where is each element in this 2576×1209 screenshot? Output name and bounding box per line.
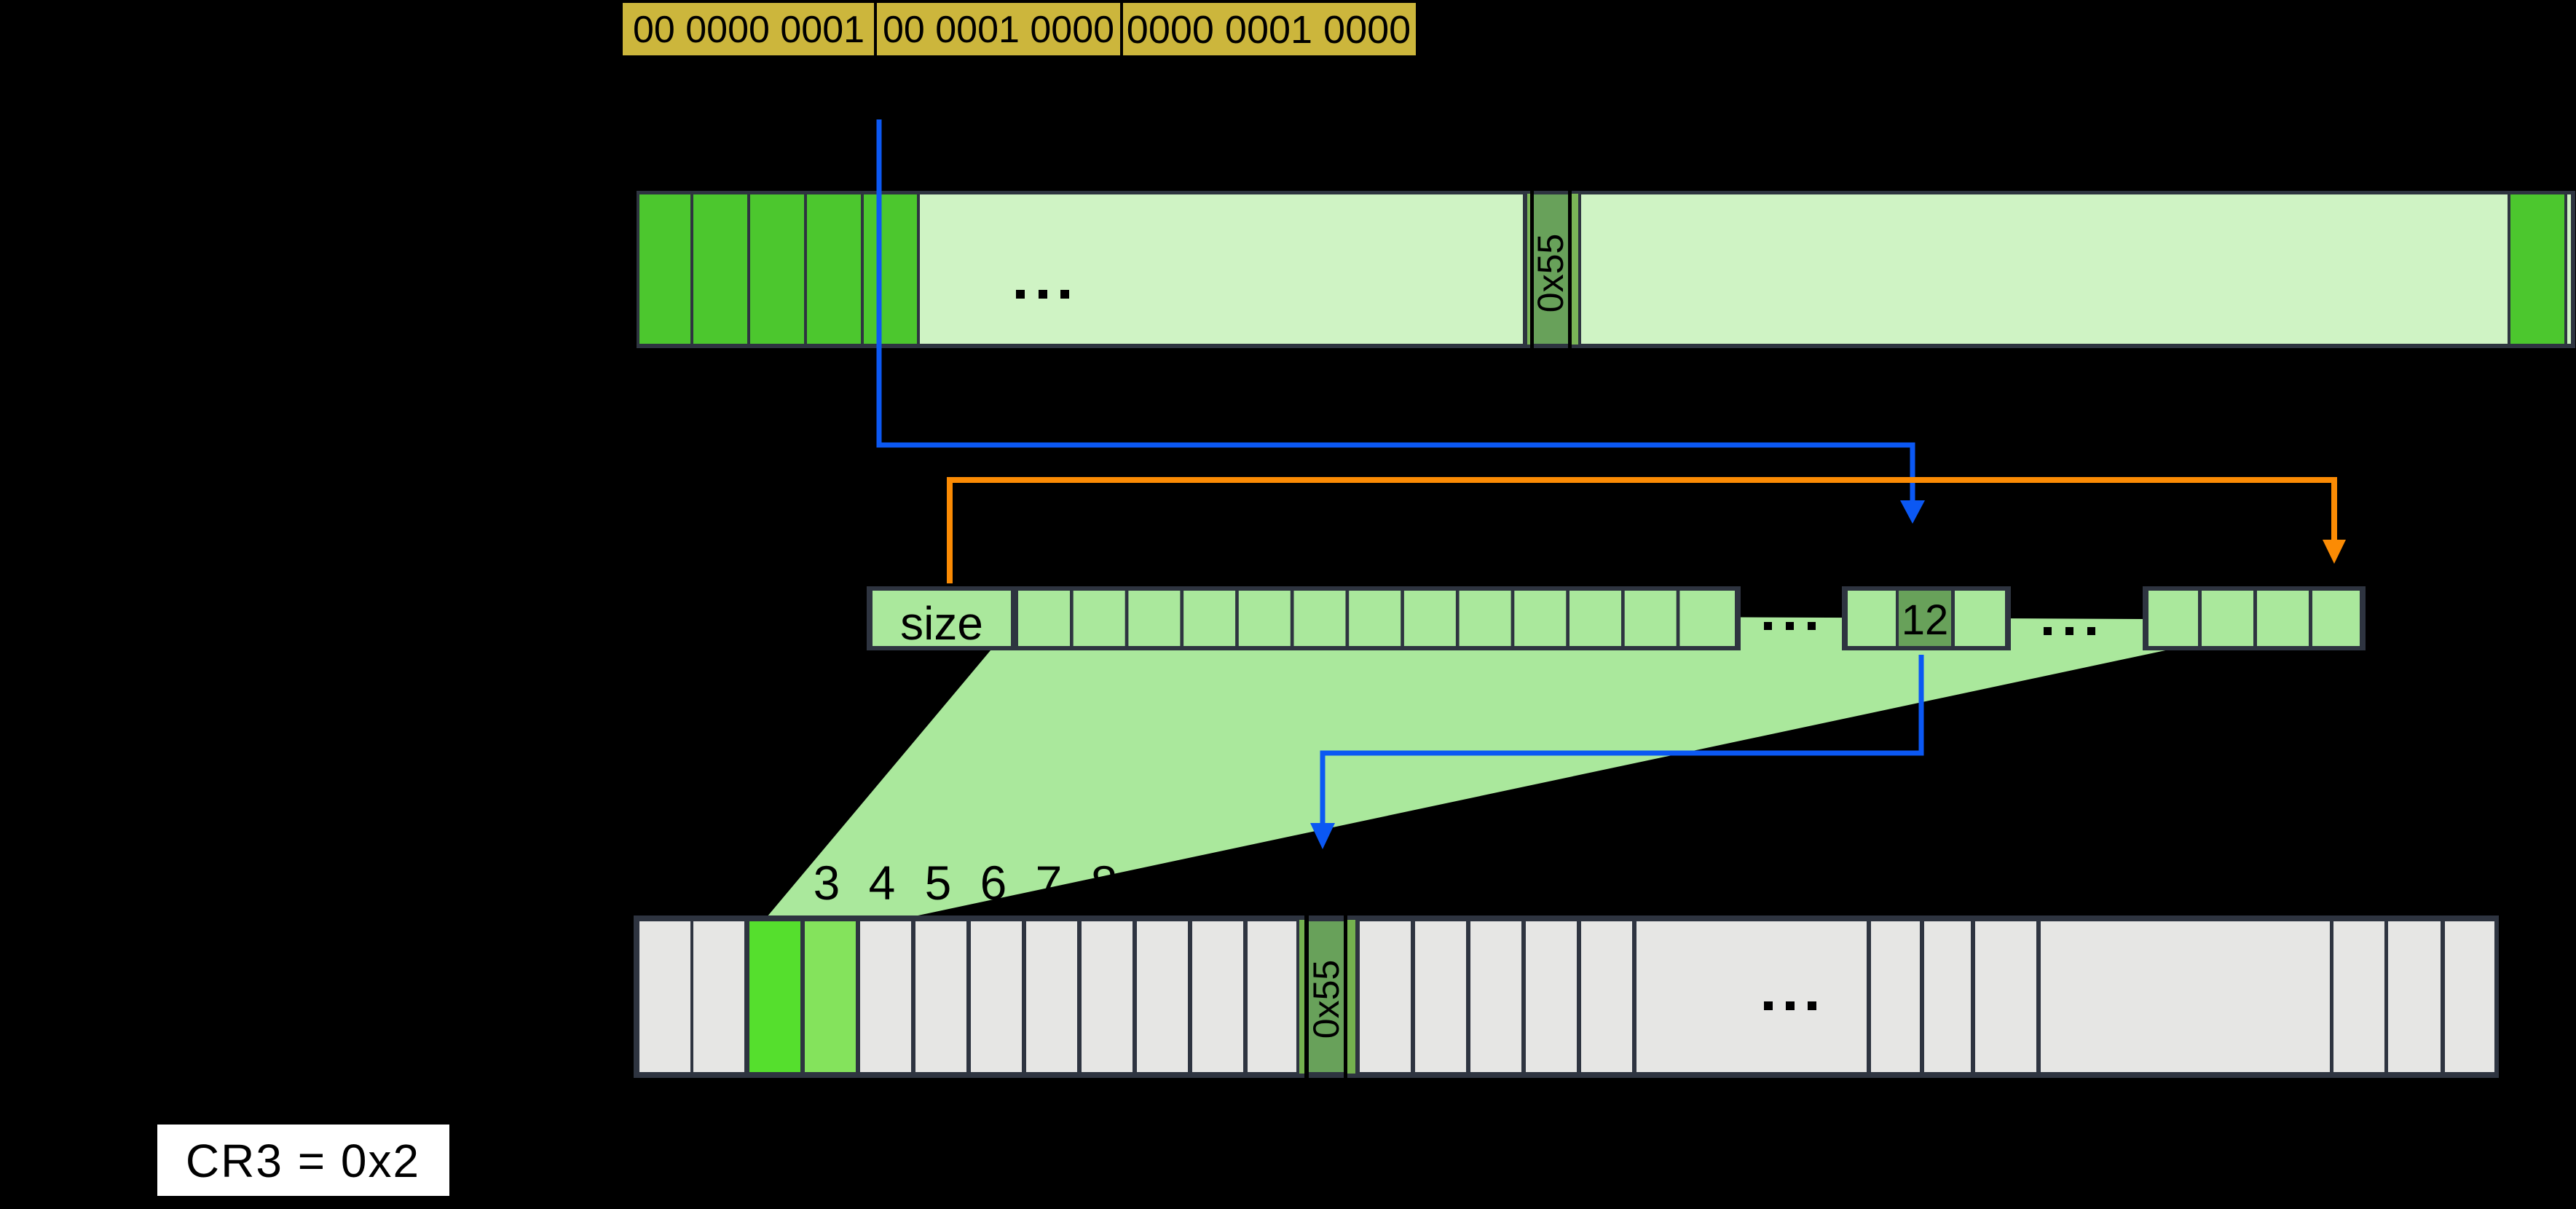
- svg-text:size: size: [900, 597, 983, 650]
- svg-text:0x55: 0x55: [1306, 960, 1347, 1039]
- svg-text:5: 5: [925, 856, 952, 910]
- svg-text:12: 12: [1902, 596, 1949, 644]
- svg-text:4: 4: [869, 856, 896, 910]
- svg-text:00 0000 0001: 00 0000 0001: [633, 9, 864, 51]
- svg-text:CR3 = 0x2: CR3 = 0x2: [186, 1135, 420, 1187]
- svg-text:6: 6: [980, 856, 1007, 910]
- svg-text:0000 0001 0000: 0000 0001 0000: [1127, 8, 1411, 52]
- svg-text:3: 3: [814, 856, 840, 910]
- svg-text:0x55: 0x55: [1530, 234, 1571, 312]
- svg-text:8: 8: [1091, 856, 1118, 910]
- svg-text:7: 7: [1036, 856, 1063, 910]
- svg-text:00 0001 0000: 00 0001 0000: [883, 9, 1114, 51]
